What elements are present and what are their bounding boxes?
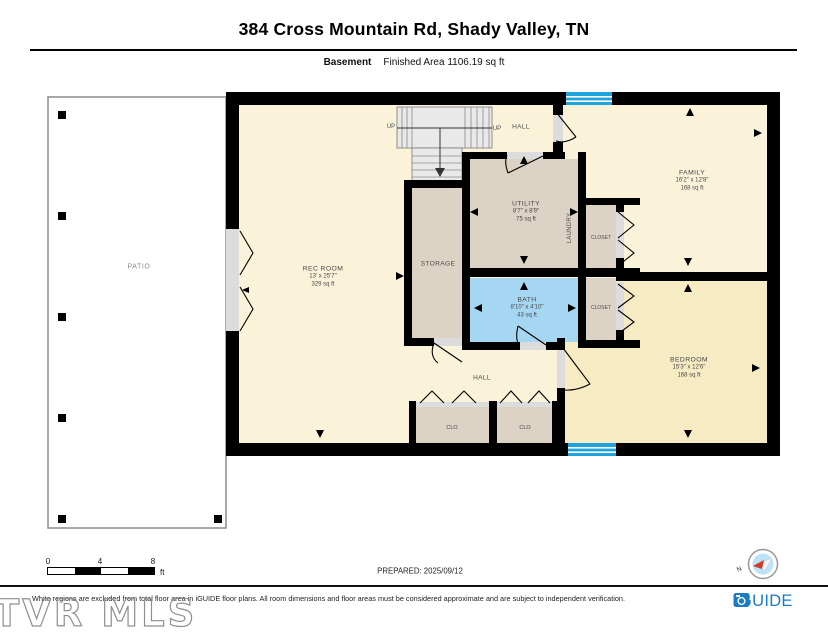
scale-tick-4: 4 [98, 557, 102, 566]
hall-top-label: HALL [512, 124, 530, 131]
footer-divider [0, 585, 828, 587]
scale-unit: ft [160, 568, 164, 577]
patio-outline [48, 97, 226, 528]
patio-label: PATIO [128, 264, 151, 271]
scale-tick-0: 0 [46, 557, 50, 566]
floorplan-page: 384 Cross Mountain Rd, Shady Valley, TN … [0, 0, 828, 640]
iguide-logo: iGUIDE [733, 592, 793, 611]
camera-icon [733, 592, 750, 608]
mls-watermark: TVR MLS [0, 592, 197, 635]
bath-label: BATH 8'10" x 4'10" 43 sq ft [511, 297, 544, 320]
bedroom-label: BEDROOM 15'3" x 12'6" 168 sq ft [670, 357, 708, 380]
scale-tick-8: 8 [151, 557, 155, 566]
closet-label-family: CLOSET [591, 235, 611, 241]
storage-label: STORAGE [421, 261, 455, 268]
compass-icon [739, 545, 787, 587]
up-label-right: UP [493, 126, 501, 132]
up-label-left: UP [387, 124, 395, 130]
laundry-label: LAUNDRY [567, 213, 573, 244]
closet-label-bedroom: CLOSET [591, 305, 611, 311]
clo-label-1: CLO [446, 425, 457, 431]
floor-plan-drawing [0, 0, 828, 640]
rec-room-label: REC ROOM 13' x 25'7" 329 sq ft [303, 266, 344, 289]
utility-label: UTILITY 8'7" x 8'9" 75 sq ft [512, 201, 540, 224]
hall-bottom-label: HALL [473, 375, 491, 382]
scale-bar [47, 567, 155, 575]
prepared-date: PREPARED: 2025/09/12 [377, 567, 463, 576]
family-label: FAMILY 16'2" x 12'8" 168 sq ft [676, 170, 709, 193]
clo-label-2: CLO [519, 425, 530, 431]
